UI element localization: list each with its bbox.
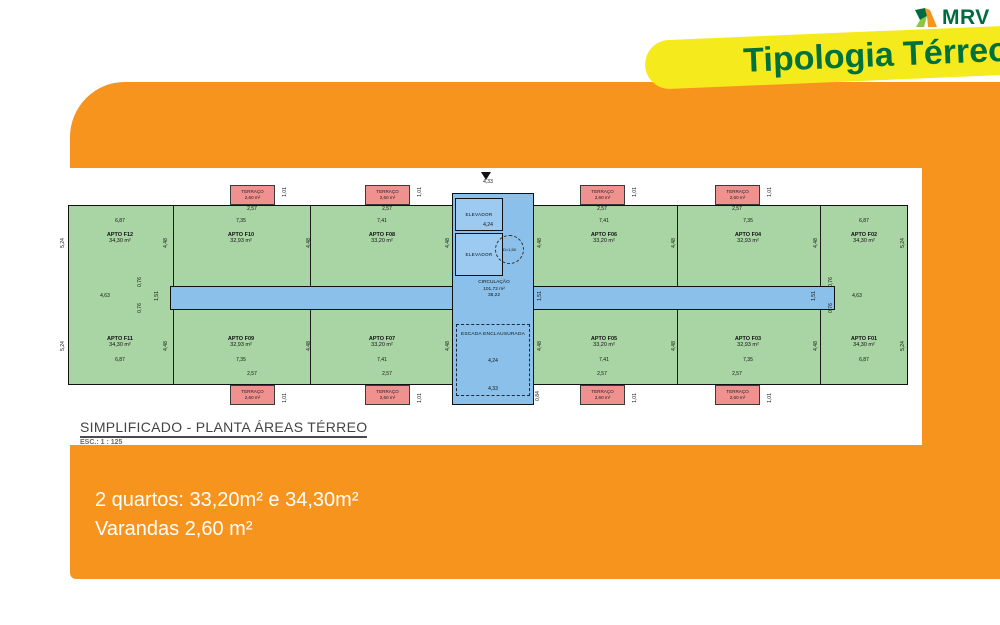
dimension-label: 7,35 [743,357,753,363]
dimension-label: 4,48 [163,341,169,351]
dimension-label: 4,63 [100,293,110,299]
apartment-area: 32,93 m² [196,238,286,244]
title-banner: Tipologia Térreo [644,25,1000,90]
dimension-label: 2,57 [382,206,392,212]
dimension-label: 7,41 [599,357,609,363]
mrv-logo-text: MRV [942,6,990,30]
dimension-label: 7,35 [236,357,246,363]
apartment-area: 33,20 m² [559,342,649,348]
dimension-label: 1,01 [767,187,773,197]
dimension-label: 4,33 [483,179,493,185]
apartment-cell: APTO F10 32,93 m² [196,232,286,244]
circulation-label: CIRCULAÇÃO 101,72 m² 38,22 [456,280,532,300]
footer-line2: Varandas 2,60 m² [95,515,358,544]
terrace: TERRAÇO 2,60 m² [715,385,760,405]
terrace: TERRAÇO 2,60 m² [230,185,275,205]
apartment-area: 34,30 m² [819,238,909,244]
dimension-label: 1,51 [811,291,817,301]
dimension-label: 4,48 [306,238,312,248]
apartment-area: 32,93 m² [703,238,793,244]
apartment-area: 34,30 m² [75,238,165,244]
dimension-label: 1,51 [537,291,543,301]
apartment-area: 33,20 m² [337,238,427,244]
terrace-area: 2,60 m² [245,195,261,201]
dimension-label: 4,48 [813,341,819,351]
terrace: TERRAÇO 2,60 m² [580,385,625,405]
dimension-label: 1,51 [154,291,160,301]
apartment-cell: APTO F05 33,20 m² [559,336,649,348]
dimension-label: 0,76 [828,277,834,287]
terrace: TERRAÇO 2,60 m² [580,185,625,205]
dimension-label: 4,33 [488,386,498,392]
terrace-area: 2,60 m² [595,195,611,201]
dimension-label: 4,63 [852,293,862,299]
terrace-area: 2,60 m² [245,395,261,401]
apartment-area: 34,30 m² [819,342,909,348]
apartment-cell: APTO F09 32,93 m² [196,336,286,348]
apartment-cell: APTO F03 32,93 m² [703,336,793,348]
terrace-area: 2,60 m² [595,395,611,401]
dimension-label: 1,01 [632,187,638,197]
dimension-label: 0,76 [137,303,143,313]
dimension-label: 5,24 [900,341,906,351]
apartment-cell: APTO F07 33,20 m² [337,336,427,348]
apartment-cell: APTO F11 34,30 m² [75,336,165,348]
apartment-cell: APTO F04 32,93 m² [703,232,793,244]
dimension-label: 6,87 [859,357,869,363]
dimension-label: 7,41 [377,218,387,224]
dimension-label: 0,76 [828,303,834,313]
dimension-label: 4,48 [163,238,169,248]
apartment-area: 33,20 m² [559,238,649,244]
dimension-label: 4,48 [537,238,543,248]
dimension-label: 2,57 [732,206,742,212]
dimension-label: 2,57 [247,371,257,377]
terrace: TERRAÇO 2,60 m² [365,185,410,205]
apartment-area: 32,93 m² [703,342,793,348]
circulation-dim: 38,22 [456,293,532,300]
dimension-label: 2,57 [247,206,257,212]
apartment-area: 33,20 m² [337,342,427,348]
circulation-name: CIRCULAÇÃO [456,280,532,287]
elevator-1: ELEVADOR [455,198,503,231]
dimension-label: 6,87 [115,218,125,224]
apartment-area: 32,93 m² [196,342,286,348]
dimension-label: 7,35 [743,218,753,224]
terrace-area: 2,60 m² [380,195,396,201]
mrv-logo-icon [915,8,939,28]
dimension-label: 4,48 [671,341,677,351]
dimension-label: 2,57 [597,371,607,377]
dimension-label: 1,01 [282,187,288,197]
dimension-label: 4,48 [445,238,451,248]
page-title: Tipologia Térreo [743,31,1000,81]
dimension-label: 2,57 [382,371,392,377]
dimension-label: 4,48 [306,341,312,351]
dimension-label: 2,57 [732,371,742,377]
dimension-label: 7,41 [377,357,387,363]
dimension-label: 1,01 [767,393,773,403]
apartment-cell: APTO F12 34,30 m² [75,232,165,244]
terrace-area: 2,60 m² [730,395,746,401]
dimension-label: 1,01 [282,393,288,403]
terrace: TERRAÇO 2,60 m² [230,385,275,405]
dimension-label: 0,76 [137,277,143,287]
plan-caption: SIMPLIFICADO - PLANTA ÁREAS TÉRREO [80,419,367,438]
dimension-label: 1,01 [632,393,638,403]
dimension-label: 6,87 [115,357,125,363]
dimension-label: 7,41 [599,218,609,224]
terrace-area: 2,60 m² [730,195,746,201]
footer-line1: 2 quartos: 33,20m² e 34,30m² [95,486,358,515]
terrace-area: 2,60 m² [380,395,396,401]
dimension-label: 6,87 [859,218,869,224]
dimension-label: 5,24 [900,238,906,248]
dimension-label: 4,24 [483,222,493,228]
dimension-label: 0,84 [535,391,541,401]
apartment-cell: APTO F06 33,20 m² [559,232,649,244]
dimension-label: 1,01 [417,393,423,403]
floorplan-panel: ELEVADOR ELEVADOR D=1,50 CIRCULAÇÃO 101,… [57,168,922,445]
dimension-label: 4,24 [488,358,498,364]
turning-circle: D=1,50 [495,235,524,264]
apartment-cell: APTO F01 34,30 m² [819,336,909,348]
slide-canvas: Tipologia Térreo MRV ELEVADOR ELEVADOR D… [0,0,1000,625]
apartment-cell: APTO F08 33,20 m² [337,232,427,244]
plan-scale: ESC.: 1 : 125 [80,439,122,446]
terrace: TERRAÇO 2,60 m² [715,185,760,205]
terrace: TERRAÇO 2,60 m² [365,385,410,405]
dimension-label: 2,57 [597,206,607,212]
dimension-label: 4,48 [537,341,543,351]
dimension-label: 1,01 [417,187,423,197]
footer-notes: 2 quartos: 33,20m² e 34,30m² Varandas 2,… [95,486,358,544]
dimension-label: 5,24 [60,341,66,351]
dimension-label: 4,48 [445,341,451,351]
dimension-label: 4,48 [813,238,819,248]
mrv-logo: MRV [915,6,990,30]
dimension-label: 7,35 [236,218,246,224]
dimension-label: 5,24 [60,238,66,248]
apartment-area: 34,30 m² [75,342,165,348]
dimension-label: 4,48 [671,238,677,248]
apartment-cell: APTO F02 34,30 m² [819,232,909,244]
